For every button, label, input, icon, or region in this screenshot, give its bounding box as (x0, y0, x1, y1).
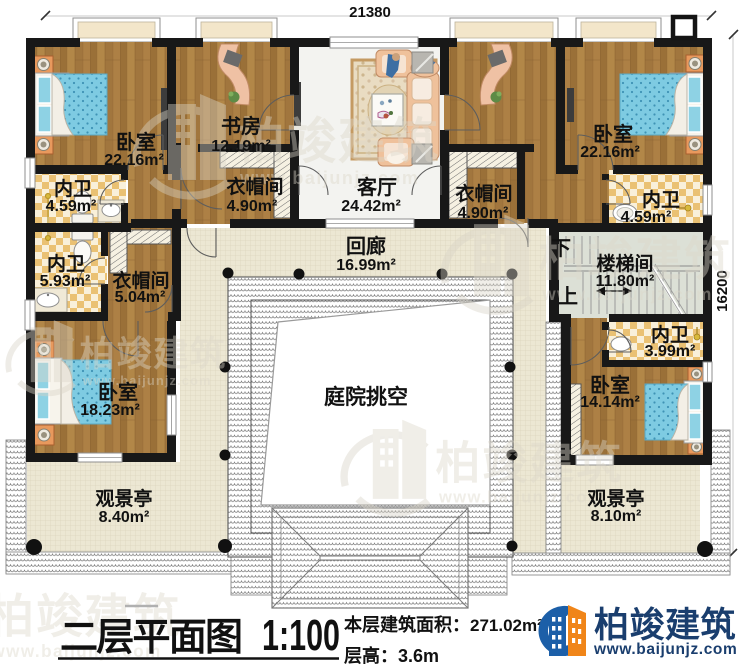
svg-text:内卫: 内卫 (642, 188, 680, 211)
svg-text:层高：3.6m: 层高：3.6m (344, 645, 439, 666)
svg-text:11.80m²: 11.80m² (596, 273, 655, 290)
svg-text:5.04m²: 5.04m² (115, 289, 166, 306)
svg-text:卧室: 卧室 (98, 380, 138, 404)
svg-text:21380: 21380 (349, 4, 391, 21)
svg-text:14.14m²: 14.14m² (580, 394, 640, 411)
svg-text:内卫: 内卫 (47, 252, 85, 275)
svg-text:本层建筑面积：271.02m²: 本层建筑面积：271.02m² (344, 614, 543, 635)
svg-text:客厅: 客厅 (356, 175, 397, 199)
svg-text:www.baijunjz.com: www.baijunjz.com (593, 641, 737, 658)
svg-text:观景亭: 观景亭 (95, 487, 152, 510)
svg-text:3.99m²: 3.99m² (645, 343, 696, 360)
svg-text:4.59m²: 4.59m² (621, 209, 672, 226)
svg-text:18.23m²: 18.23m² (80, 402, 140, 419)
svg-text:卧室: 卧室 (593, 122, 633, 146)
svg-text:观景亭: 观景亭 (587, 487, 644, 510)
svg-text:楼梯间: 楼梯间 (596, 252, 653, 275)
svg-text:庭院挑空: 庭院挑空 (324, 385, 408, 409)
svg-text:12.19m²: 12.19m² (211, 138, 271, 155)
svg-text:8.10m²: 8.10m² (591, 508, 642, 525)
svg-text:下: 下 (551, 238, 571, 260)
svg-text:回廊: 回廊 (346, 234, 386, 258)
svg-text:16.99m²: 16.99m² (336, 257, 396, 274)
svg-text:22.16m²: 22.16m² (580, 144, 640, 161)
svg-text:8.40m²: 8.40m² (99, 509, 150, 526)
svg-text:4.90m²: 4.90m² (227, 198, 278, 215)
svg-text:衣帽间: 衣帽间 (455, 182, 512, 205)
svg-text:衣帽间: 衣帽间 (226, 175, 283, 198)
svg-text:4.90m²: 4.90m² (458, 205, 509, 222)
svg-text:二层平面图: 二层平面图 (60, 617, 243, 659)
svg-text:柏竣建筑: 柏竣建筑 (594, 605, 736, 645)
svg-text:上: 上 (558, 285, 578, 308)
svg-text:卧室: 卧室 (116, 130, 156, 154)
svg-text:22.16m²: 22.16m² (104, 152, 164, 169)
svg-text:书房: 书房 (221, 114, 261, 138)
svg-text:5.93m²: 5.93m² (40, 273, 91, 290)
svg-text:4.59m²: 4.59m² (46, 198, 97, 215)
svg-text:内卫: 内卫 (54, 177, 92, 200)
svg-text:1:100: 1:100 (262, 611, 340, 660)
svg-text:24.42m²: 24.42m² (341, 198, 401, 215)
